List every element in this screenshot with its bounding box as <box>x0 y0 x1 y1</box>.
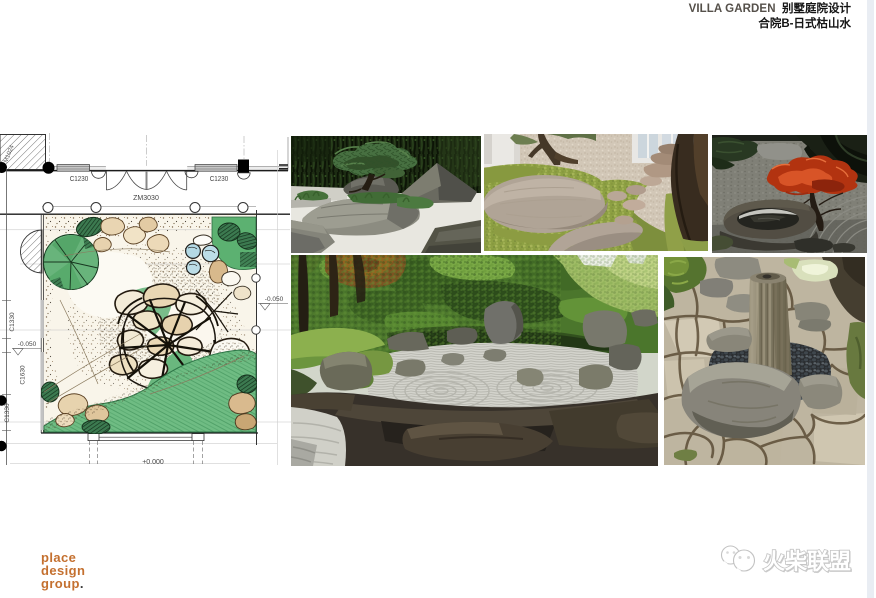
svg-text:-0.050: -0.050 <box>18 341 37 348</box>
svg-text:火柴联盟: 火柴联盟 <box>763 549 851 574</box>
svg-text:C1230: C1230 <box>210 176 229 183</box>
svg-text:ZM3030: ZM3030 <box>133 195 159 202</box>
svg-text:C1330: C1330 <box>4 403 11 423</box>
svg-text:C1330: C1330 <box>9 312 16 332</box>
svg-text:+0.000: +0.000 <box>142 459 164 466</box>
svg-text:C1230: C1230 <box>70 176 89 183</box>
svg-text:C1630: C1630 <box>20 365 27 385</box>
svg-text:-0.050: -0.050 <box>265 296 284 303</box>
